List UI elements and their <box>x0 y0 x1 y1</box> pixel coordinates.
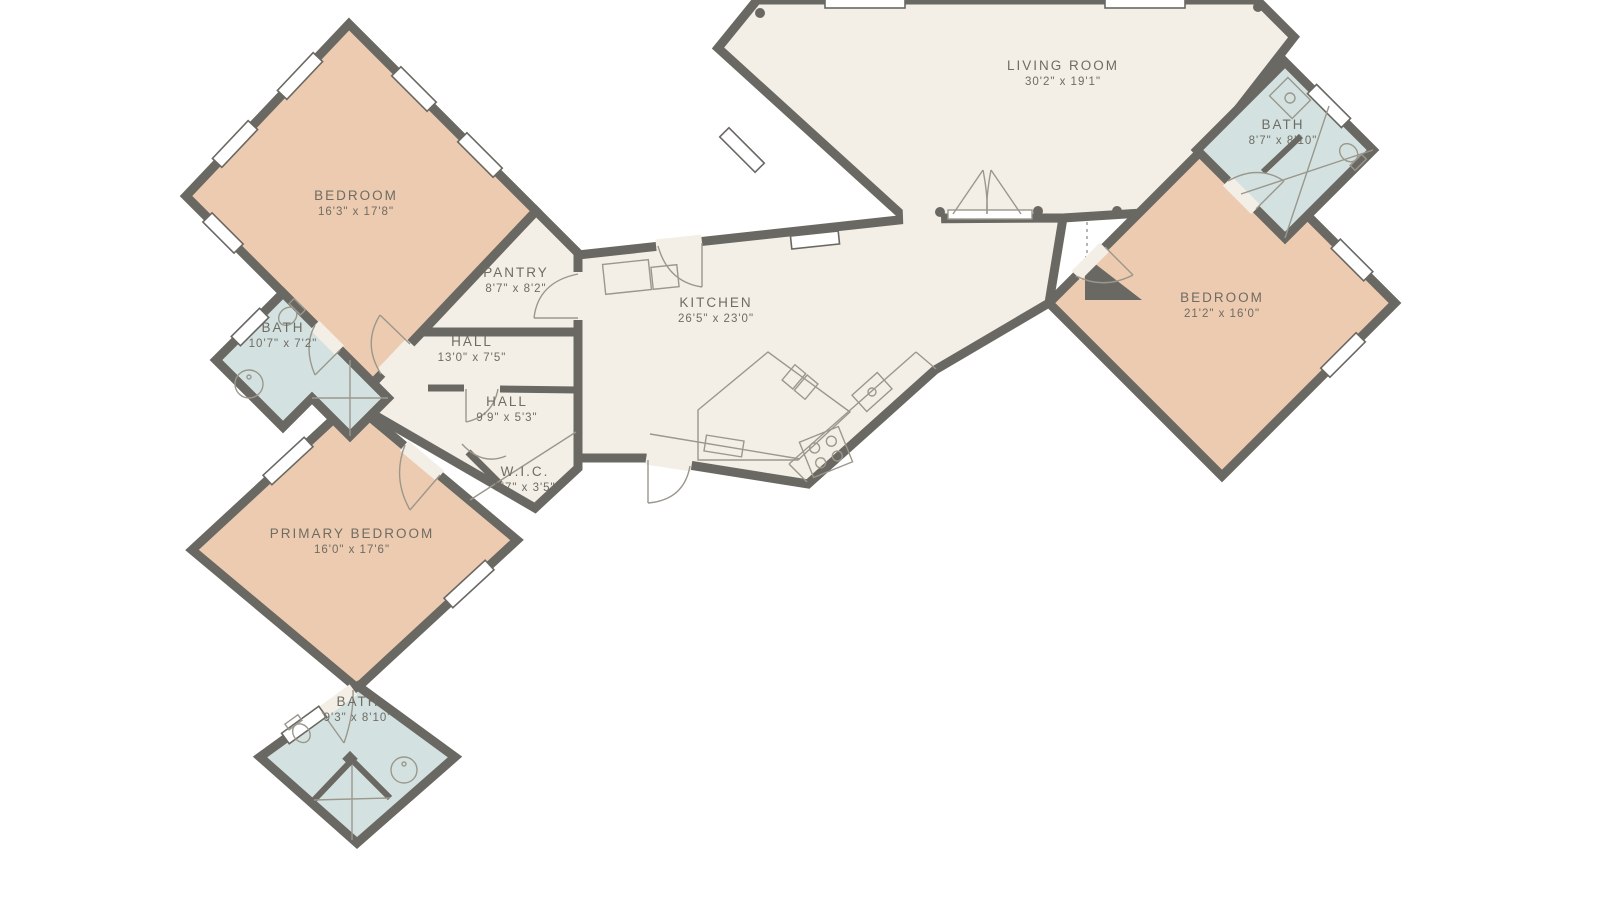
room-label: HALL <box>486 394 528 409</box>
room-dims: 16'0" x 17'6" <box>314 544 390 556</box>
wall-cap <box>1112 206 1122 216</box>
room-label: PRIMARY BEDROOM <box>270 526 435 541</box>
wall-cap <box>1033 206 1043 216</box>
room-label: BEDROOM <box>1180 290 1264 305</box>
floor-plan-canvas: LIVING ROOM 30'2" x 19'1" BATH 8'7" x 8'… <box>0 0 1600 914</box>
room-dims: 8'7" x 8'10" <box>1249 135 1318 147</box>
room-dims: 9'9" x 5'3" <box>476 412 537 424</box>
room-label: BATH <box>336 694 379 709</box>
room-dims: 10'7" x 7'2" <box>249 338 318 350</box>
wall-cap <box>755 8 765 18</box>
window <box>1105 0 1185 8</box>
room-dims: 21'2" x 16'0" <box>1184 308 1260 320</box>
room-dims: 13'0" x 7'5" <box>438 352 507 364</box>
room-label: BEDROOM <box>314 188 398 203</box>
hall-divider-wall <box>500 389 578 390</box>
wall-cap <box>935 207 945 217</box>
door-opening <box>572 272 584 320</box>
passage-opening <box>903 206 942 227</box>
room-label: PANTRY <box>483 265 549 280</box>
room-dims: 30'2" x 19'1" <box>1025 76 1101 88</box>
room-dims: 26'5" x 23'0" <box>678 313 754 325</box>
room-dims: 5'7" x 3'5" <box>494 482 555 494</box>
room-dims: 9'3" x 8'10" <box>324 712 393 724</box>
room-label: W.I.C. <box>501 464 550 479</box>
room-label: KITCHEN <box>679 295 752 310</box>
window <box>825 0 905 8</box>
wall-cap <box>1253 2 1263 12</box>
floor-plan-svg: LIVING ROOM 30'2" x 19'1" BATH 8'7" x 8'… <box>0 0 1600 914</box>
room-label: LIVING ROOM <box>1007 58 1119 73</box>
room-dims: 16'3" x 17'8" <box>318 206 394 218</box>
room-label: BATH <box>1261 117 1304 132</box>
room-label: HALL <box>451 334 493 349</box>
window <box>720 128 765 173</box>
room-label: BATH <box>261 320 304 335</box>
kitchen-floor <box>578 218 1063 484</box>
room-dims: 8'7" x 8'2" <box>485 283 546 295</box>
